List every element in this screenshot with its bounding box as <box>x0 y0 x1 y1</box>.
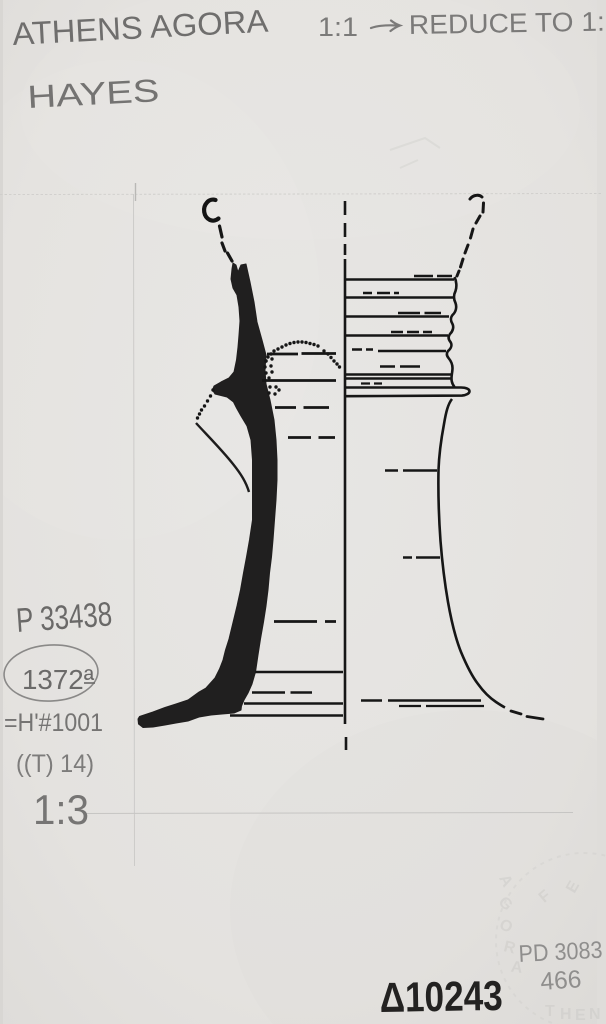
svg-text:PD 3083: PD 3083 <box>518 937 603 968</box>
svg-text:466: 466 <box>539 965 582 996</box>
svg-text:HAYES: HAYES <box>26 72 160 115</box>
svg-text:1372ª: 1372ª <box>22 664 95 695</box>
svg-text:E: E <box>575 1007 586 1024</box>
svg-text:P 33438: P 33438 <box>15 595 113 640</box>
svg-text:1:1: 1:1 <box>318 12 358 42</box>
svg-text:T: T <box>545 1003 555 1020</box>
svg-text:Δ10243: Δ10243 <box>379 972 503 1021</box>
svg-text:((T) 14): ((T) 14) <box>16 750 94 778</box>
svg-text:N: N <box>589 1006 601 1023</box>
svg-text:=H'#1001: =H'#1001 <box>4 709 103 737</box>
svg-text:REDUCE TO 1:: REDUCE TO 1: <box>409 7 605 40</box>
svg-text:H: H <box>560 1006 572 1023</box>
svg-text:1:3: 1:3 <box>33 786 89 833</box>
